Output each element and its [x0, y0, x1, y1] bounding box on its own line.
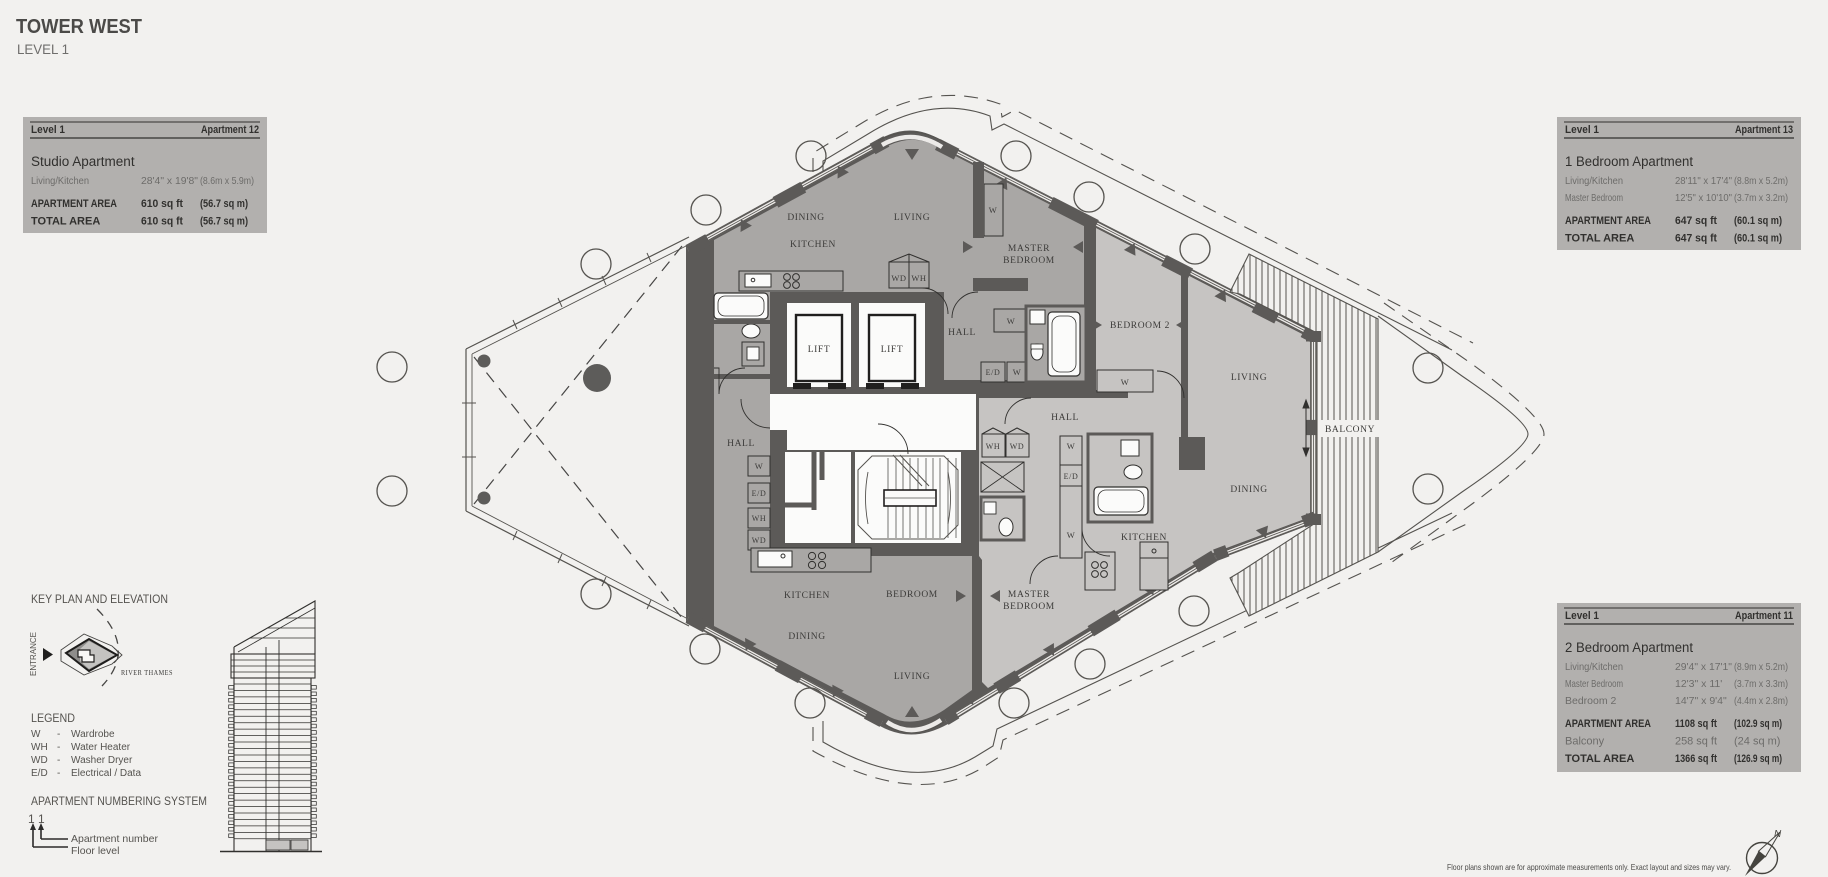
svg-text:KITCHEN: KITCHEN	[1121, 533, 1167, 543]
svg-text:WH: WH	[911, 273, 926, 283]
svg-text:2 Bedroom Apartment: 2 Bedroom Apartment	[1565, 640, 1693, 655]
svg-text:E/D: E/D	[1064, 472, 1079, 481]
svg-text:-: -	[57, 742, 60, 753]
svg-text:Washer Dryer: Washer Dryer	[71, 755, 133, 766]
svg-text:APARTMENT AREA: APARTMENT AREA	[1565, 215, 1651, 227]
svg-text:W: W	[1067, 441, 1076, 451]
svg-text:610 sq ft: 610 sq ft	[141, 216, 183, 228]
svg-text:E/D: E/D	[31, 768, 48, 779]
svg-text:KITCHEN: KITCHEN	[790, 240, 836, 250]
svg-text:KEY PLAN AND ELEVATION: KEY PLAN AND ELEVATION	[31, 594, 168, 606]
svg-text:28'11" x 17'4": 28'11" x 17'4"	[1675, 175, 1732, 187]
svg-text:LIFT: LIFT	[808, 345, 830, 355]
svg-text:(8.6m x 5.9m): (8.6m x 5.9m)	[200, 175, 254, 187]
svg-text:E/D: E/D	[986, 368, 1001, 377]
svg-text:ENTRANCE: ENTRANCE	[28, 632, 38, 676]
svg-text:WD: WD	[752, 536, 767, 545]
svg-text:Bedroom 2: Bedroom 2	[1565, 695, 1617, 707]
svg-text:APARTMENT AREA: APARTMENT AREA	[31, 198, 117, 210]
svg-text:WH: WH	[31, 742, 48, 753]
svg-text:Floor plans shown are for appr: Floor plans shown are for approximate me…	[1447, 862, 1731, 872]
svg-text:Electrical / Data: Electrical / Data	[71, 768, 141, 779]
svg-text:Water Heater: Water Heater	[71, 742, 131, 753]
svg-text:-: -	[57, 755, 60, 766]
svg-text:1108 sq ft: 1108 sq ft	[1675, 718, 1717, 730]
svg-text:TOTAL AREA: TOTAL AREA	[1565, 233, 1634, 245]
svg-text:DINING: DINING	[788, 632, 825, 642]
svg-text:1366 sq ft: 1366 sq ft	[1675, 753, 1717, 765]
svg-text:Master Bedroom: Master Bedroom	[1565, 192, 1623, 204]
svg-text:1 1: 1 1	[28, 812, 45, 826]
svg-text:(24 sq m): (24 sq m)	[1734, 736, 1780, 748]
svg-text:W: W	[31, 729, 41, 740]
svg-text:WD: WD	[31, 755, 48, 766]
svg-text:Apartment 11: Apartment 11	[1735, 610, 1793, 622]
svg-text:LIVING: LIVING	[894, 213, 930, 223]
svg-text:W: W	[1007, 316, 1016, 326]
svg-text:(8.9m x 5.2m): (8.9m x 5.2m)	[1734, 661, 1788, 673]
svg-text:W: W	[1121, 377, 1130, 387]
svg-text:14'7" x 9'4": 14'7" x 9'4"	[1675, 695, 1727, 707]
svg-text:APARTMENT NUMBERING SYSTEM: APARTMENT NUMBERING SYSTEM	[31, 796, 207, 808]
svg-text:LIFT: LIFT	[881, 345, 903, 355]
svg-text:BEDROOM: BEDROOM	[1003, 256, 1055, 266]
svg-text:E/D: E/D	[752, 489, 767, 498]
svg-text:-: -	[57, 729, 60, 740]
svg-text:Level 1: Level 1	[31, 124, 65, 136]
svg-text:BEDROOM: BEDROOM	[1003, 602, 1055, 612]
svg-text:TOWER WEST: TOWER WEST	[16, 15, 142, 38]
svg-text:KITCHEN: KITCHEN	[784, 591, 830, 601]
svg-text:WD: WD	[891, 273, 906, 283]
svg-text:Balcony: Balcony	[1565, 736, 1605, 748]
svg-text:(56.7 sq m): (56.7 sq m)	[200, 216, 248, 228]
svg-text:HALL: HALL	[727, 439, 755, 449]
svg-text:(3.7m x 3.3m): (3.7m x 3.3m)	[1734, 678, 1788, 690]
svg-text:W: W	[755, 461, 764, 471]
svg-text:W: W	[989, 205, 998, 215]
svg-text:WH: WH	[986, 442, 1001, 451]
svg-text:LIVING: LIVING	[1231, 373, 1267, 383]
svg-text:N: N	[1774, 829, 1782, 840]
svg-text:Studio Apartment: Studio Apartment	[31, 154, 135, 169]
svg-text:LEVEL 1: LEVEL 1	[17, 41, 69, 57]
svg-text:258 sq ft: 258 sq ft	[1675, 736, 1717, 748]
svg-text:Apartment 12: Apartment 12	[201, 124, 259, 136]
svg-text:LEGEND: LEGEND	[31, 713, 75, 725]
svg-text:HALL: HALL	[1051, 413, 1079, 423]
svg-text:BEDROOM: BEDROOM	[886, 590, 938, 600]
svg-text:(3.7m x 3.2m): (3.7m x 3.2m)	[1734, 192, 1788, 204]
svg-text:(4.4m x 2.8m): (4.4m x 2.8m)	[1734, 695, 1788, 707]
svg-text:1 Bedroom Apartment: 1 Bedroom Apartment	[1565, 154, 1693, 169]
svg-text:610 sq ft: 610 sq ft	[141, 198, 183, 210]
svg-text:(60.1 sq m): (60.1 sq m)	[1734, 233, 1782, 245]
svg-text:DINING: DINING	[1230, 485, 1267, 495]
svg-text:(126.9 sq m): (126.9 sq m)	[1734, 753, 1782, 765]
svg-text:APARTMENT AREA: APARTMENT AREA	[1565, 718, 1651, 730]
svg-text:RIVER THAMES: RIVER THAMES	[121, 668, 173, 677]
svg-text:DINING: DINING	[787, 213, 824, 223]
svg-text:W: W	[1067, 530, 1076, 540]
svg-text:Apartment 13: Apartment 13	[1735, 124, 1793, 136]
svg-text:12'5" x 10'10": 12'5" x 10'10"	[1675, 192, 1732, 204]
svg-text:28'4" x 19'8": 28'4" x 19'8"	[141, 175, 198, 187]
svg-text:12'3" x 11': 12'3" x 11'	[1675, 678, 1722, 690]
svg-text:647 sq ft: 647 sq ft	[1675, 233, 1717, 245]
svg-text:WD: WD	[1010, 442, 1025, 451]
svg-text:-: -	[57, 768, 60, 779]
svg-text:BALCONY: BALCONY	[1325, 425, 1375, 435]
svg-text:Floor level: Floor level	[71, 845, 119, 857]
svg-text:Living/Kitchen: Living/Kitchen	[1565, 661, 1623, 673]
svg-text:Living/Kitchen: Living/Kitchen	[1565, 175, 1623, 187]
svg-text:Apartment number: Apartment number	[71, 833, 158, 845]
svg-text:W: W	[1013, 367, 1022, 377]
svg-text:MASTER: MASTER	[1008, 590, 1050, 600]
svg-text:Master Bedroom: Master Bedroom	[1565, 678, 1623, 690]
svg-text:(8.8m x 5.2m): (8.8m x 5.2m)	[1734, 175, 1788, 187]
svg-text:LIVING: LIVING	[894, 672, 930, 682]
svg-text:BEDROOM 2: BEDROOM 2	[1110, 321, 1170, 331]
svg-text:TOTAL AREA: TOTAL AREA	[1565, 753, 1634, 765]
svg-text:(102.9 sq m): (102.9 sq m)	[1734, 718, 1782, 730]
svg-text:(60.1 sq m): (60.1 sq m)	[1734, 215, 1782, 227]
svg-text:WH: WH	[752, 514, 767, 523]
svg-text:MASTER: MASTER	[1008, 244, 1050, 254]
svg-text:647 sq ft: 647 sq ft	[1675, 215, 1717, 227]
svg-text:Level 1: Level 1	[1565, 610, 1599, 622]
svg-text:Level 1: Level 1	[1565, 124, 1599, 136]
svg-text:(56.7 sq m): (56.7 sq m)	[200, 198, 248, 210]
svg-text:Living/Kitchen: Living/Kitchen	[31, 175, 89, 187]
svg-text:TOTAL AREA: TOTAL AREA	[31, 216, 100, 228]
svg-text:Wardrobe: Wardrobe	[71, 729, 115, 740]
svg-text:HALL: HALL	[948, 328, 976, 338]
svg-text:29'4" x 17'1": 29'4" x 17'1"	[1675, 661, 1732, 673]
